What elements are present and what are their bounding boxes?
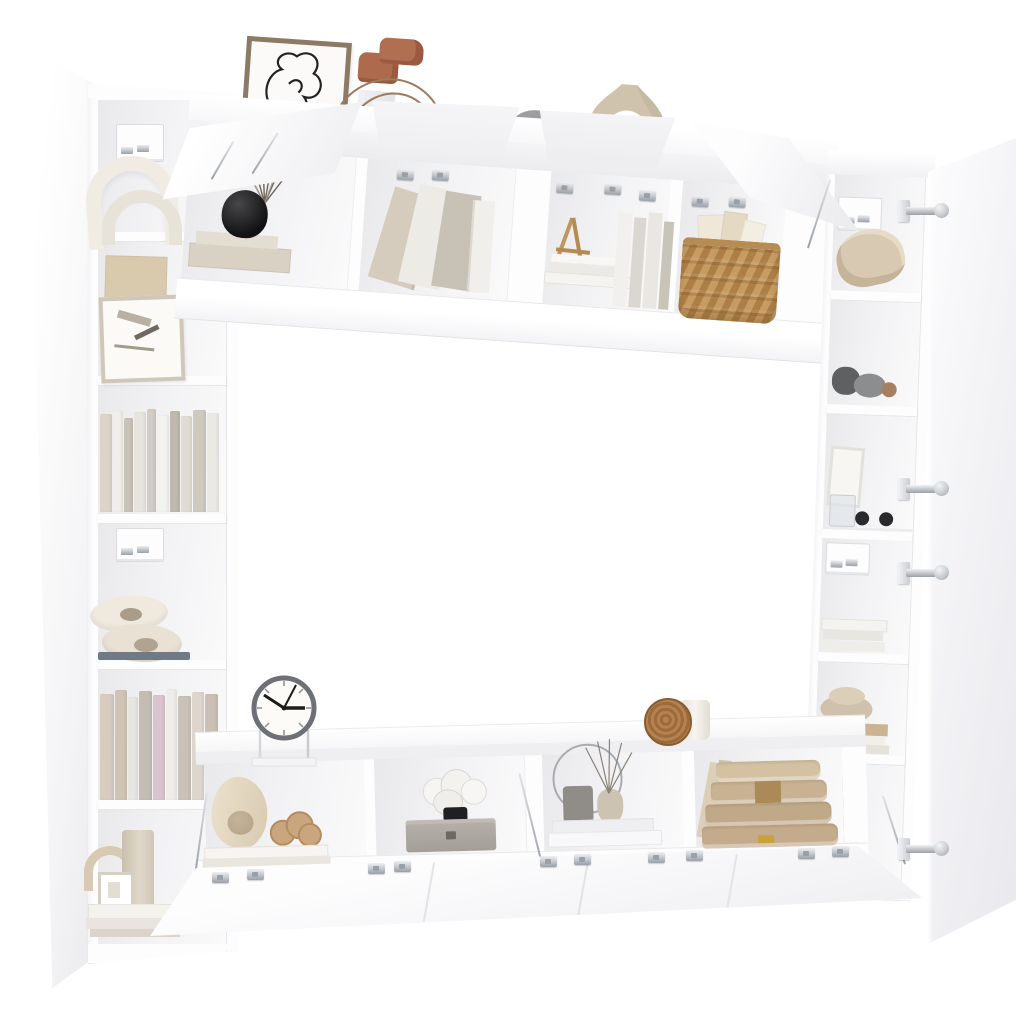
left-shelf <box>98 514 226 524</box>
book-spine <box>193 410 206 512</box>
door-hinge <box>898 558 950 588</box>
book-spine <box>166 689 177 800</box>
hinge-fitting <box>394 861 411 872</box>
hinge-fitting <box>212 872 229 883</box>
door-hinge <box>898 196 950 226</box>
book-spine <box>178 696 191 800</box>
tan-book <box>716 760 820 783</box>
wall-clock <box>248 672 320 768</box>
door-stay-rod <box>211 141 235 180</box>
left-shelf <box>98 660 226 670</box>
book-spine <box>157 415 169 512</box>
stone-hole <box>134 638 158 652</box>
hinge-fitting <box>604 183 622 195</box>
door-seam <box>724 854 737 919</box>
white-book-stack <box>823 629 883 641</box>
wall-mount-bracket <box>116 528 164 562</box>
box-clasp <box>446 831 456 839</box>
white-plinth <box>548 830 662 848</box>
hinge-fitting <box>397 169 415 181</box>
hinge-fitting <box>368 863 385 874</box>
art-stroke <box>114 344 154 351</box>
door-hinge <box>898 474 950 504</box>
book-spine <box>134 412 146 512</box>
wooden-disc <box>644 698 692 746</box>
left-bottom-panel <box>88 944 238 964</box>
wall-mount-bracket <box>825 542 870 576</box>
book-spine <box>181 416 192 512</box>
hinge-fitting <box>648 852 665 863</box>
book-spine <box>124 418 133 512</box>
tan-book-band <box>755 781 782 804</box>
hinge-fitting <box>540 856 557 867</box>
tan-book-label <box>758 835 774 843</box>
book-spine <box>139 691 152 800</box>
door-hinge <box>898 834 950 864</box>
book-spine <box>115 690 127 800</box>
bottom-end-panel <box>842 746 869 843</box>
left-door-open <box>28 44 92 988</box>
door-seam <box>423 862 435 921</box>
hinge-fitting <box>832 846 849 857</box>
hinge-fitting <box>247 869 264 880</box>
right-door-open <box>928 138 1016 944</box>
hinge-fitting <box>556 182 574 194</box>
book-spine <box>100 414 112 512</box>
book-spine <box>113 410 123 512</box>
stone-hole <box>120 608 142 621</box>
hinge-fitting <box>728 196 746 208</box>
wicker-texture <box>678 244 780 318</box>
book-spine <box>170 411 180 512</box>
book-spine <box>128 697 138 800</box>
hinge-fitting <box>639 190 657 202</box>
hinge-fitting <box>432 169 450 181</box>
lantern-inner <box>108 882 120 898</box>
door-stay-rod <box>251 132 278 174</box>
art-stroke <box>134 324 160 340</box>
book-spine <box>100 694 114 800</box>
product-photo-tv-wall-unit <box>0 0 1024 1024</box>
glass-cup <box>829 494 856 527</box>
hinge-fitting <box>691 195 709 207</box>
hinge-fitting <box>686 850 703 861</box>
art-stroke <box>117 310 152 327</box>
hinge-fitting <box>574 854 591 865</box>
door-seam <box>577 858 590 919</box>
book-spine <box>147 409 156 512</box>
book-spine <box>207 413 219 512</box>
reed-sticks <box>577 736 638 796</box>
thin-book <box>98 652 190 660</box>
hinge-fitting <box>798 848 815 859</box>
book-spine <box>153 695 165 800</box>
